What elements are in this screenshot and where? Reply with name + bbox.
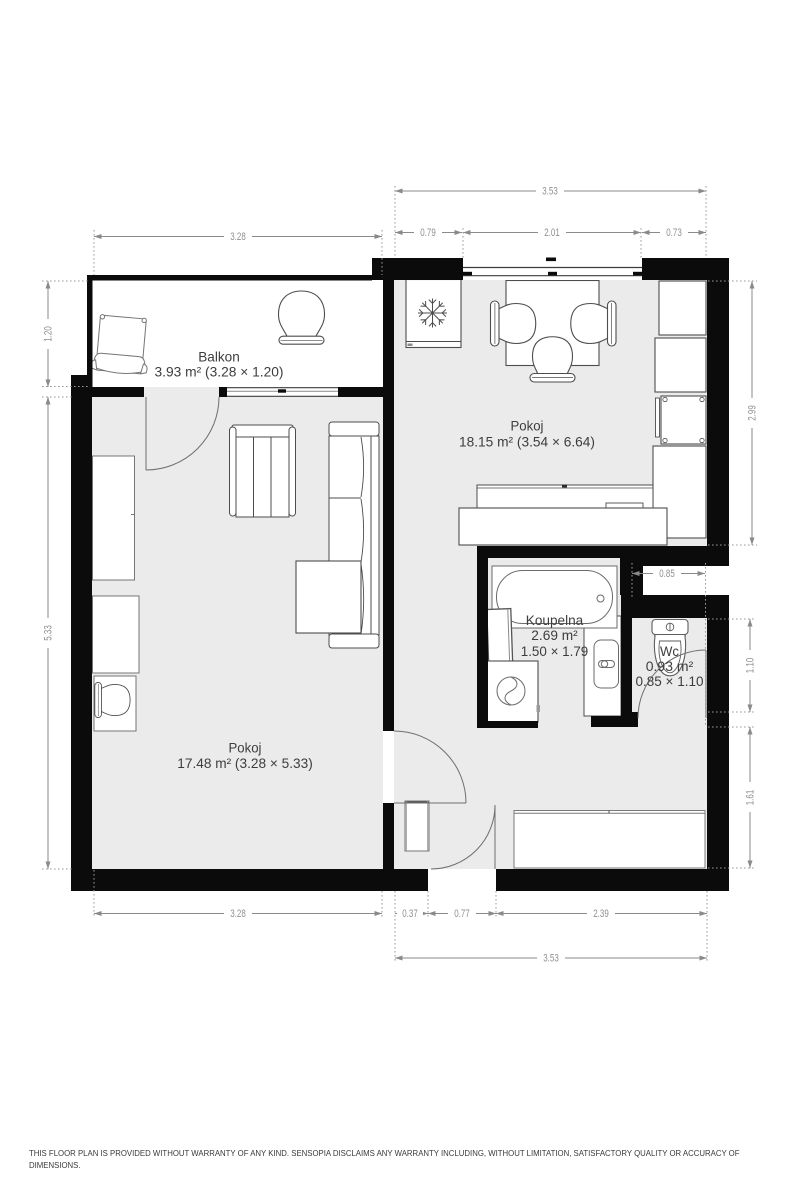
svg-text:1.20: 1.20	[43, 326, 55, 342]
svg-text:0.77: 0.77	[454, 908, 470, 920]
svg-text:Koupelna: Koupelna	[526, 612, 584, 628]
svg-text:0.85 × 1.10: 0.85 × 1.10	[636, 673, 704, 689]
svg-text:3.53: 3.53	[543, 953, 559, 965]
svg-text:18.15 m² (3.54 × 6.64): 18.15 m² (3.54 × 6.64)	[459, 434, 595, 450]
svg-text:0.79: 0.79	[420, 227, 436, 239]
svg-text:0.85: 0.85	[659, 568, 675, 580]
svg-text:3.93 m² (3.28 × 1.20): 3.93 m² (3.28 × 1.20)	[155, 364, 284, 380]
svg-text:2.39: 2.39	[593, 908, 609, 920]
svg-text:1.50 × 1.79: 1.50 × 1.79	[521, 643, 589, 659]
svg-text:1.61: 1.61	[745, 790, 757, 806]
svg-text:3.53: 3.53	[542, 186, 558, 198]
svg-text:17.48 m² (3.28 × 5.33): 17.48 m² (3.28 × 5.33)	[177, 755, 313, 771]
svg-text:5.33: 5.33	[43, 625, 55, 641]
svg-text:0.37: 0.37	[402, 908, 418, 920]
svg-text:Balkon: Balkon	[198, 349, 240, 365]
svg-text:2.01: 2.01	[544, 227, 560, 239]
svg-text:2.99: 2.99	[747, 405, 759, 421]
svg-text:0.73: 0.73	[666, 227, 682, 239]
svg-text:3.28: 3.28	[230, 231, 246, 243]
svg-text:0.93 m²: 0.93 m²	[646, 658, 694, 674]
svg-text:3.28: 3.28	[230, 908, 246, 920]
svg-text:Pokoj: Pokoj	[511, 418, 544, 434]
svg-text:2.69 m²: 2.69 m²	[531, 627, 578, 643]
svg-text:1.10: 1.10	[745, 658, 757, 674]
svg-text:Pokoj: Pokoj	[229, 740, 262, 756]
svg-text:Wc: Wc	[660, 643, 679, 659]
